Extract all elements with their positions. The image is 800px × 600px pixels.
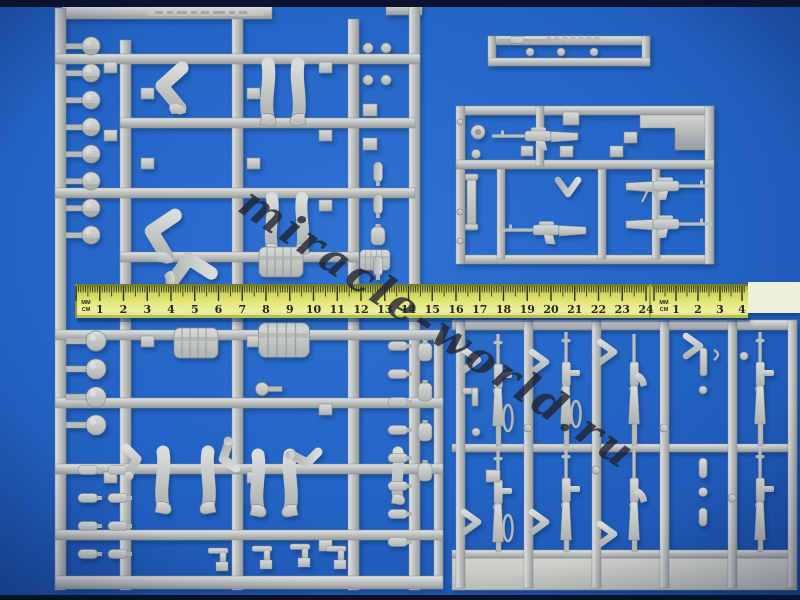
photo-edges [0, 0, 800, 600]
photo-of-model-sprues: 123456789101112131415161718192021222324M… [0, 0, 800, 600]
vignette [0, 0, 800, 600]
scene-canvas: 123456789101112131415161718192021222324M… [0, 0, 800, 600]
